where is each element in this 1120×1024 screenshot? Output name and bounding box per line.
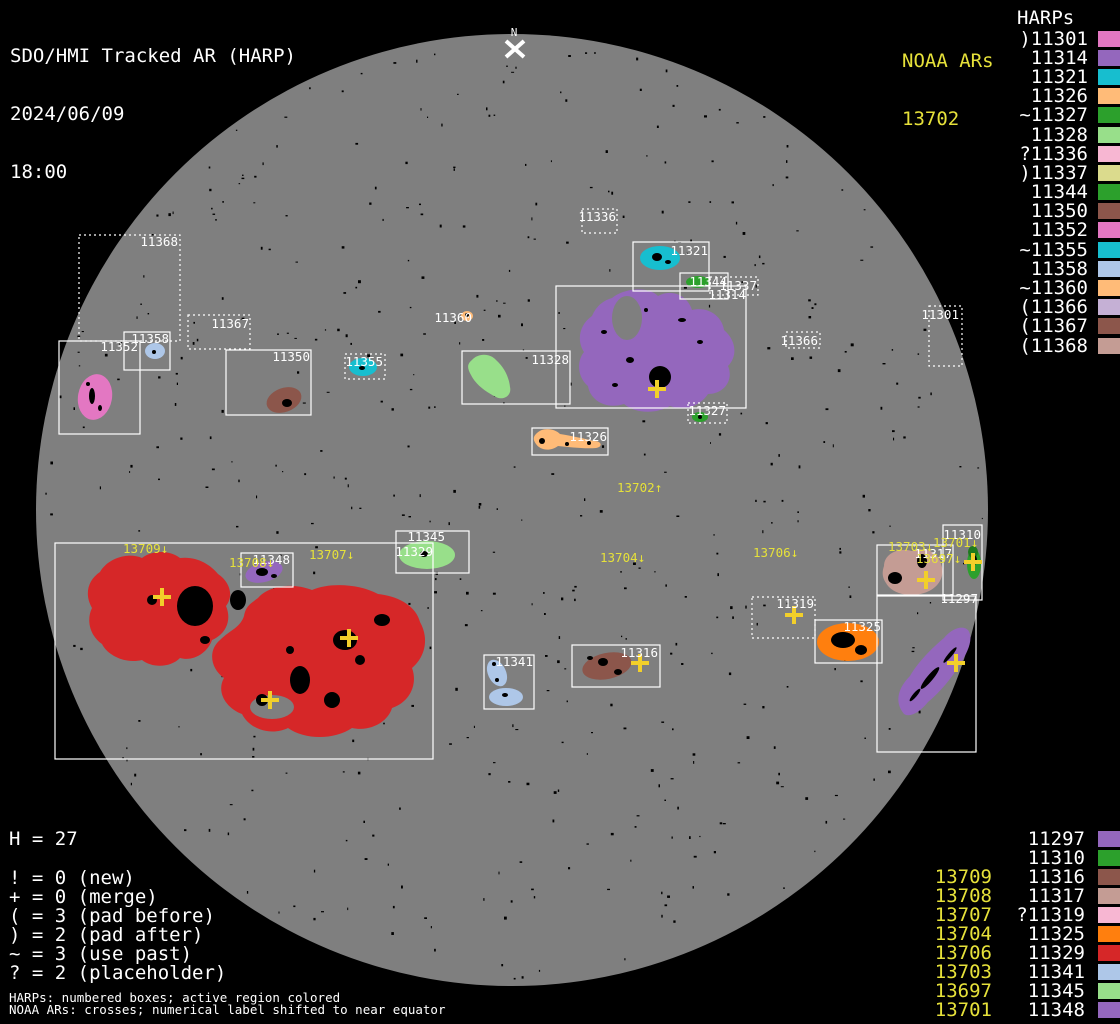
harp-list-row: 11358 [1000,259,1120,278]
harp-color-swatch [1098,165,1120,181]
harp-color-swatch [1098,907,1120,923]
legend-lines: ! = 0 (new)+ = 0 (merge)( = 3 (pad befor… [9,869,226,983]
bottom-list-row: 13707?11319 [930,905,1120,924]
harp-box-label: 11316 [620,645,658,660]
harp-color-swatch [1098,107,1120,123]
bottom-right-lists: 11297113101370911316137081131713707?1131… [930,829,1120,1019]
noaa-top-block: NOAA ARs 13702 [902,14,994,168]
footnote-noaa: NOAA ARs: crosses; numerical label shift… [9,1004,446,1017]
harp-box-label: 11345 [407,529,445,544]
bottom-list-row: 1370811317 [930,886,1120,905]
harp-list-row: (11368 [1000,336,1120,355]
harp-color-swatch [1098,831,1120,847]
harp-box-label: 11327 [688,403,726,418]
harp-box-label: 11314 [708,287,746,302]
bottom-list-row: 1369711345 [930,981,1120,1000]
harp-box-label: 11319 [776,596,814,611]
harp-box-label: 11326 [569,429,607,444]
harp-list-row: 11352 [1000,221,1120,240]
noaa-top-value: 13702 [902,110,994,129]
harp-list-row: ~11355 [1000,240,1120,259]
harp-list-row: )11337 [1000,163,1120,182]
title-block: SDO/HMI Tracked AR (HARP) 2024/06/09 18:… [10,9,296,220]
active-region [489,688,523,706]
bottom-list-row: 1370411325 [930,924,1120,943]
harp-floating-label: 11360 [434,310,472,325]
harp-box-label: 11301 [921,307,959,322]
harp-id: 11348 [992,999,1085,1021]
legend-line: ? = 2 (placeholder) [9,964,226,983]
harp-color-swatch [1098,888,1120,904]
obs-time: 18:00 [10,163,296,182]
harp-list-row: ~11360 [1000,278,1120,297]
harp-color-swatch [1098,318,1120,334]
app-window: 1136811367113521135811350113551132811336… [0,0,1120,1024]
harp-color-swatch [1098,222,1120,238]
harp-color-swatch [1098,184,1120,200]
harp-list-row: 11350 [1000,202,1120,221]
harp-color-swatch [1098,299,1120,315]
harp-list-row: ?11336 [1000,144,1120,163]
harp-color-swatch [1098,926,1120,942]
harp-color-swatch [1098,203,1120,219]
noaa-label: 13702↑ [617,480,662,495]
noaa-label: 13701↓ [933,535,978,550]
page-title: SDO/HMI Tracked AR (HARP) [10,47,296,66]
harp-box-label: 11358 [131,331,169,346]
harp-color-swatch [1098,50,1120,66]
bottom-list-row: 1370611329 [930,943,1120,962]
harp-id: (11368 [1000,335,1088,357]
noaa-label: 13704↓ [600,550,645,565]
north-label: N [511,26,518,39]
bottom-list-row: 11297 [930,829,1120,848]
harp-list-row: )11301 [1000,29,1120,48]
harp-box-label: 11367 [211,316,249,331]
harp-list-row: 11328 [1000,125,1120,144]
harp-list-row: (11367 [1000,317,1120,336]
harp-box-label: 11368 [140,234,178,249]
noaa-label: 13709↓ [123,541,168,556]
harp-color-swatch [1098,69,1120,85]
noaa-label: 13708↓ [229,555,274,570]
harps-header: HARPs [1017,9,1074,28]
harp-box-label: 11336 [578,209,616,224]
harp-box-label: 11328 [531,352,569,367]
bottom-list-row: 11310 [930,848,1120,867]
harp-color-swatch [1098,280,1120,296]
bottom-list-row: 1370311341 [930,962,1120,981]
harp-color-swatch [1098,242,1120,258]
noaa-label: 13706↓ [753,545,798,560]
harp-color-swatch [1098,945,1120,961]
harp-color-swatch [1098,127,1120,143]
harp-box-label: 11341 [495,654,533,669]
noaa-label: 13697↓ [916,551,961,566]
harp-list-row: 11326 [1000,87,1120,106]
noaa-ars-header: NOAA ARs [902,52,994,71]
harp-color-swatch [1098,31,1120,47]
bottom-list-row: 1370111348 [930,1000,1120,1019]
harp-color-swatch [1098,338,1120,354]
harp-list-row: ~11327 [1000,106,1120,125]
harp-color-swatch [1098,1002,1120,1018]
harp-color-swatch [1098,964,1120,980]
harp-color-swatch [1098,850,1120,866]
harp-box-label: 11329 [395,544,433,559]
noaa-label: 13707↓ [309,547,354,562]
harp-color-swatch [1098,88,1120,104]
harp-box-label: 11355 [345,354,383,369]
bottom-list-row: 1370911316 [930,867,1120,886]
harp-color-swatch [1098,146,1120,162]
harp-color-swatch [1098,869,1120,885]
harp-list-row: 11344 [1000,183,1120,202]
obs-date: 2024/06/09 [10,105,296,124]
harp-box-label: 11325 [843,619,881,634]
harps-list: )11301113141132111326~1132711328?11336)1… [1000,29,1120,355]
harp-color-swatch [1098,983,1120,999]
noaa-ar-id: 13701 [930,999,992,1021]
harp-box-label: 11297 [940,591,978,606]
harp-count: H = 27 [9,830,78,849]
harp-box-label: 11321 [670,243,708,258]
harp-color-swatch [1098,261,1120,277]
harp-list-row: (11366 [1000,298,1120,317]
harp-list-row: 11321 [1000,67,1120,86]
harp-box-label: 11366 [780,333,818,348]
harp-list-row: 11314 [1000,48,1120,67]
harp-box-label: 11350 [272,349,310,364]
